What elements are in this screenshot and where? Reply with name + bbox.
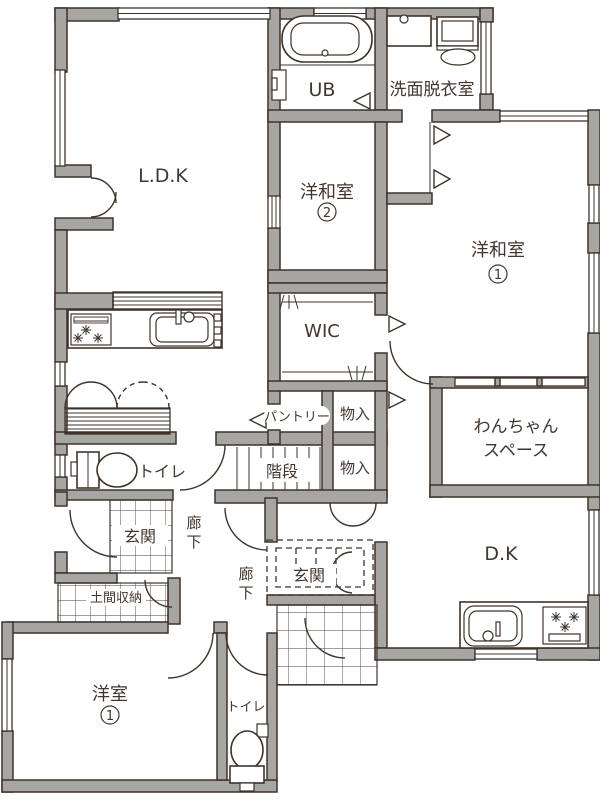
room-number-western-room1: 1 bbox=[101, 706, 119, 724]
room-label-jw-room2: 洋和室 bbox=[300, 182, 354, 203]
svg-text:下: 下 bbox=[186, 533, 201, 551]
closet-bifold-doors bbox=[65, 382, 169, 408]
sliding-door-dog-space bbox=[455, 378, 585, 386]
room-label-toilet-lower: トイレ bbox=[226, 700, 265, 715]
svg-text:下: 下 bbox=[238, 584, 253, 602]
slide-marker-closet-2 bbox=[434, 170, 450, 188]
window-jwroom1-top bbox=[500, 111, 588, 121]
room-label-entrance2-group: 玄関 bbox=[282, 564, 336, 585]
window-ldk-left-2 bbox=[55, 362, 65, 386]
room-label-doma: 土間収納 bbox=[90, 591, 142, 606]
svg-text:2: 2 bbox=[323, 206, 331, 221]
room-label-stairs: 階段 bbox=[266, 462, 298, 481]
room-label-entrance2: 玄関 bbox=[293, 566, 325, 585]
room-label-pantry-group: パントリー bbox=[264, 406, 330, 425]
svg-text:1: 1 bbox=[494, 268, 502, 283]
room-label-dog-space-2: スペース bbox=[483, 441, 549, 461]
room-label-hallway2: 廊 下 bbox=[238, 565, 253, 602]
sliding-door-ldk-jwroom2 bbox=[268, 196, 280, 228]
stove-dk bbox=[543, 607, 586, 644]
window-jwroom1-right-1 bbox=[589, 185, 599, 223]
svg-text:廊: 廊 bbox=[238, 565, 253, 583]
room-label-hallway1: 廊 下 bbox=[186, 514, 201, 551]
window-dk-right bbox=[589, 510, 599, 595]
room-label-ldk: L.D.K bbox=[138, 165, 188, 187]
room-label-western-room1: 洋室 bbox=[92, 684, 128, 705]
window-ldk-left bbox=[55, 70, 65, 166]
door-jwroom1-passage bbox=[390, 341, 433, 384]
toilet-lower-fixture bbox=[230, 724, 268, 791]
svg-text:1: 1 bbox=[106, 709, 114, 724]
floor-plan: L.D.K UB 洗面脱衣室 洋和室 2 洋和室 1 WIC パントリー 物入 … bbox=[0, 0, 600, 800]
room-label-dog-space-1: わんちゃん bbox=[474, 417, 559, 437]
door-western-room1 bbox=[168, 633, 213, 678]
room-label-wic: WIC bbox=[304, 321, 340, 342]
slide-marker-closet-1 bbox=[434, 126, 450, 144]
room-label-stairs-group: 階段 bbox=[252, 458, 312, 482]
room-label-doma-group: 土間収納 bbox=[86, 589, 146, 606]
slide-marker-wic bbox=[389, 316, 405, 332]
toilet-upper-fixture bbox=[71, 452, 137, 488]
bath-vanity bbox=[272, 70, 286, 100]
porch-tiles bbox=[277, 605, 377, 685]
slide-marker-ub bbox=[354, 93, 370, 109]
washroom-vanity bbox=[437, 17, 478, 65]
window-dk-bottom bbox=[475, 649, 537, 659]
room-label-toilet-upper: トイレ bbox=[138, 462, 186, 481]
window-toilet-left bbox=[55, 455, 65, 477]
bathtub bbox=[282, 16, 372, 62]
room-label-entrance-main: 玄関 bbox=[124, 527, 156, 546]
window-ldk-top bbox=[118, 8, 270, 19]
room-number-jw-room1: 1 bbox=[489, 265, 507, 283]
svg-text:廊: 廊 bbox=[186, 514, 201, 532]
door-toilet-lower bbox=[226, 633, 268, 675]
floor-plan-drawing: L.D.K UB 洗面脱衣室 洋和室 2 洋和室 1 WIC パントリー 物入 … bbox=[0, 0, 600, 800]
window-wroom1-left bbox=[2, 659, 12, 731]
closet-louver-ldk bbox=[65, 408, 170, 434]
window-jwroom1-right-2 bbox=[589, 253, 599, 333]
washing-machine bbox=[387, 15, 431, 46]
sink-ldk bbox=[150, 310, 214, 346]
room-number-jw-room2: 2 bbox=[318, 203, 336, 221]
room-label-storage-lower: 物入 bbox=[340, 459, 370, 477]
door-ldk-left-double bbox=[91, 178, 116, 217]
slide-marker-storage-upper bbox=[389, 392, 405, 408]
stove-ldk bbox=[71, 314, 111, 345]
room-label-storage-upper: 物入 bbox=[340, 405, 370, 423]
window-washroom-right bbox=[481, 22, 491, 94]
room-label-pantry: パントリー bbox=[264, 410, 330, 425]
room-label-jw-room1: 洋和室 bbox=[471, 240, 525, 261]
door-hallway bbox=[225, 508, 267, 550]
room-label-dk: D.K bbox=[484, 543, 518, 565]
door-dk-hall-double bbox=[330, 503, 376, 526]
room-label-entrance-main-group: 玄関 bbox=[112, 525, 168, 546]
room-label-ub: UB bbox=[309, 79, 336, 101]
room-label-washroom: 洗面脱衣室 bbox=[390, 80, 475, 100]
door-ldk-hall bbox=[180, 445, 225, 490]
